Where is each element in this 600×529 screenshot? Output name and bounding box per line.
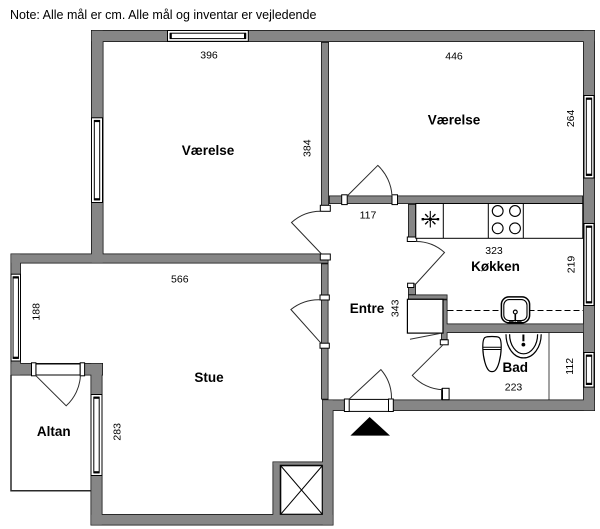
svg-text:343: 343 bbox=[390, 299, 402, 317]
svg-text:188: 188 bbox=[31, 303, 43, 321]
svg-text:283: 283 bbox=[112, 423, 124, 441]
svg-text:323: 323 bbox=[485, 245, 503, 257]
svg-text:566: 566 bbox=[171, 273, 189, 285]
svg-text:Køkken: Køkken bbox=[471, 259, 520, 274]
svg-text:264: 264 bbox=[565, 109, 577, 127]
svg-text:Bad: Bad bbox=[503, 360, 529, 375]
svg-text:396: 396 bbox=[200, 50, 218, 62]
svg-text:446: 446 bbox=[445, 51, 463, 63]
svg-text:112: 112 bbox=[564, 358, 576, 375]
svg-text:Altan: Altan bbox=[37, 424, 71, 439]
svg-text:384: 384 bbox=[302, 139, 314, 157]
svg-text:117: 117 bbox=[360, 209, 377, 221]
svg-text:Værelse: Værelse bbox=[182, 143, 235, 158]
svg-text:223: 223 bbox=[505, 382, 523, 394]
svg-text:Entre: Entre bbox=[350, 301, 385, 316]
svg-text:Note: Alle mål er cm. Alle mål: Note: Alle mål er cm. Alle mål og invent… bbox=[10, 8, 316, 22]
svg-text:Stue: Stue bbox=[194, 370, 224, 385]
svg-text:Værelse: Værelse bbox=[428, 113, 481, 128]
svg-text:219: 219 bbox=[565, 256, 577, 274]
